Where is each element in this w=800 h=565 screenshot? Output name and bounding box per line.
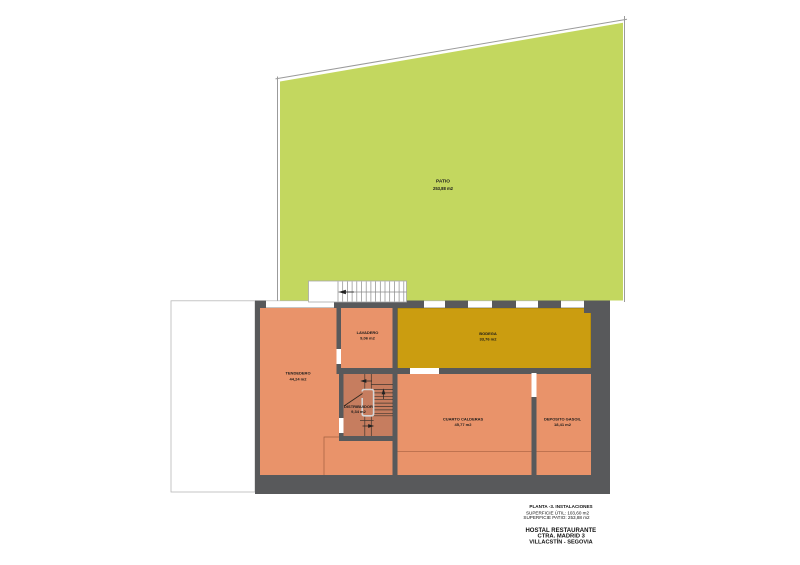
svg-text:DEPOSITO GASOIL: DEPOSITO GASOIL [544,417,582,422]
svg-text:CUARTO CALDERAS: CUARTO CALDERAS [443,417,484,422]
svg-text:9,06 m2: 9,06 m2 [360,336,375,341]
svg-text:18,41 m2: 18,41 m2 [554,422,572,427]
svg-text:VILLACSTÍN - SEGOVIA: VILLACSTÍN - SEGOVIA [529,538,592,546]
svg-text:45,77 m2: 45,77 m2 [455,422,473,427]
svg-text:SUPERFICIE PATIO: 253,88 m2: SUPERFICIE PATIO: 253,88 m2 [523,515,590,520]
svg-text:PLANTA -3. INSTALACIONES: PLANTA -3. INSTALACIONES [529,504,592,509]
svg-text:9,34 m2: 9,34 m2 [351,409,366,414]
svg-text:33,76 m2: 33,76 m2 [480,337,498,342]
svg-text:BODEGA: BODEGA [479,331,497,336]
svg-text:253,88 m2: 253,88 m2 [433,186,454,191]
svg-text:TENDEDERO: TENDEDERO [285,371,310,376]
svg-text:PATIO: PATIO [436,179,450,185]
svg-text:LAVADERO: LAVADERO [357,330,379,335]
svg-text:44,24 m2: 44,24 m2 [290,377,308,382]
